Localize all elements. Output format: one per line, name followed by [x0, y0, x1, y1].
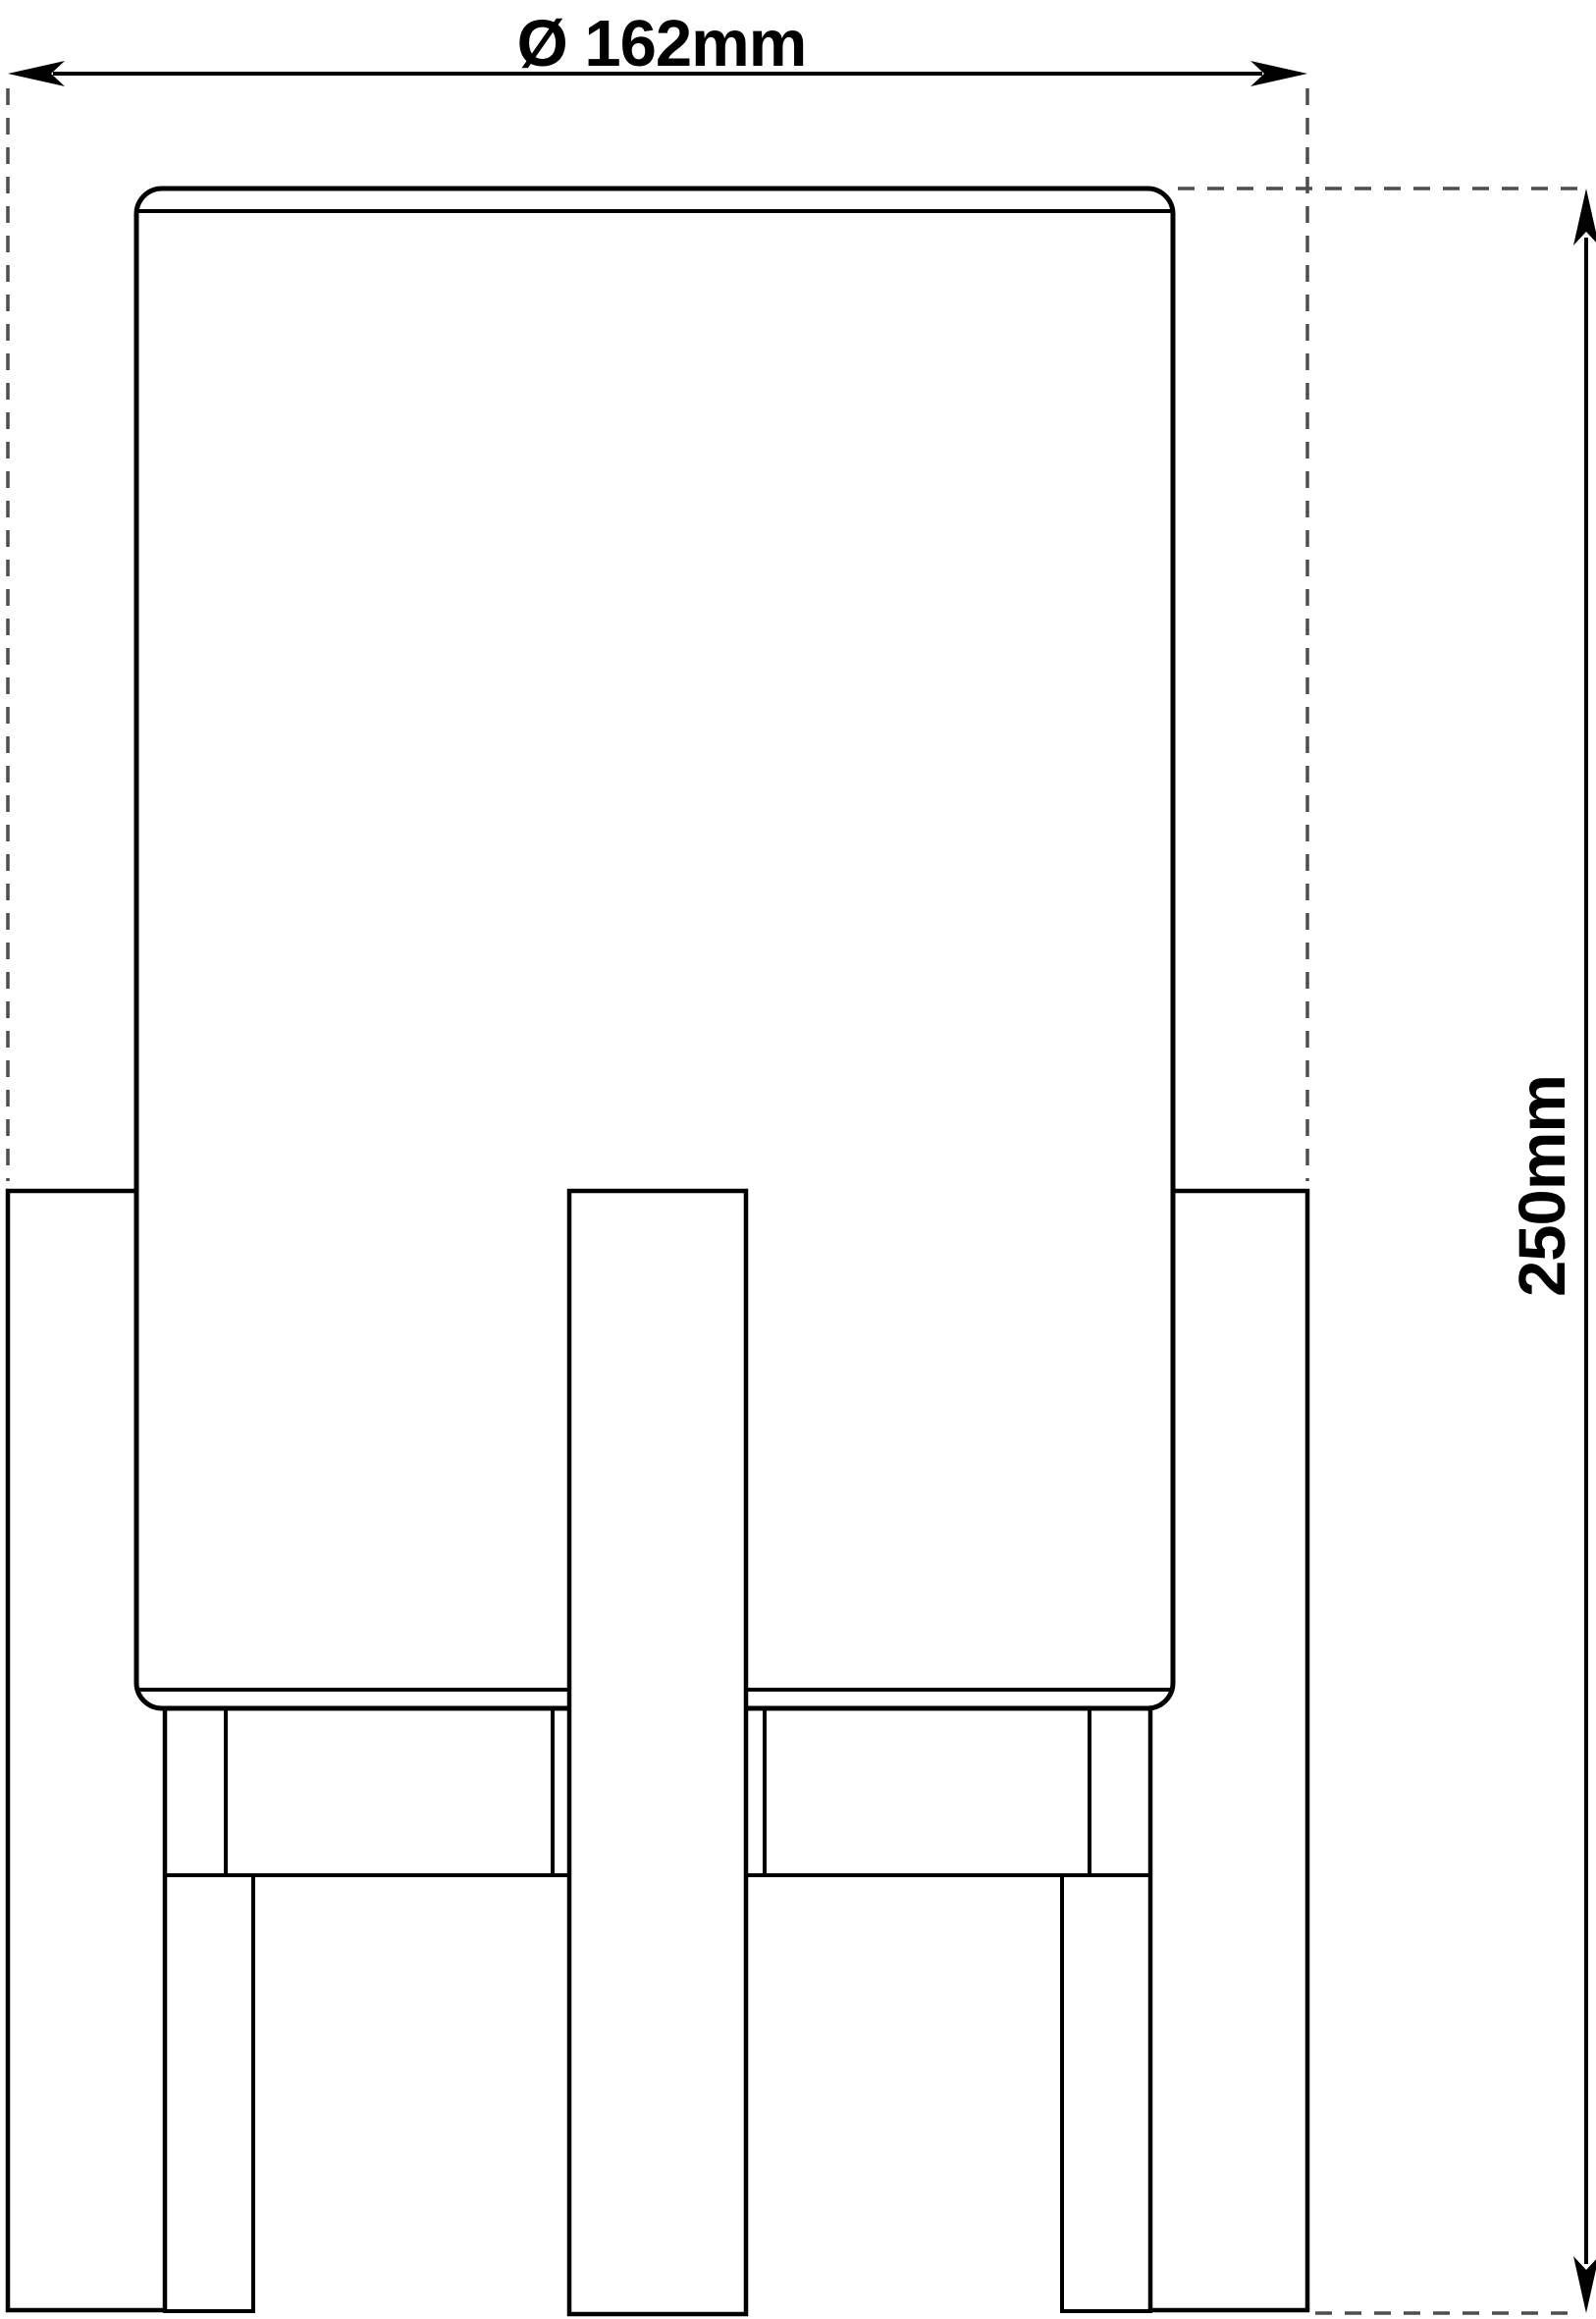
- width-dimension-label: Ø 162mm: [517, 7, 807, 81]
- foot-right: [1062, 1875, 1150, 2311]
- height-arrow-bottom: [1573, 2256, 1596, 2313]
- leg-center: [569, 1191, 746, 2314]
- technical-drawing: Ø 162mm 250mm: [0, 0, 1596, 2319]
- lamp-drawing: [8, 189, 1307, 2314]
- height-dimension-label: 250mm: [1506, 1075, 1579, 1297]
- product-dimension-drawing-page: Ø 162mm 250mm: [0, 0, 1596, 2319]
- height-arrow-top: [1573, 189, 1596, 245]
- foot-left: [165, 1875, 253, 2311]
